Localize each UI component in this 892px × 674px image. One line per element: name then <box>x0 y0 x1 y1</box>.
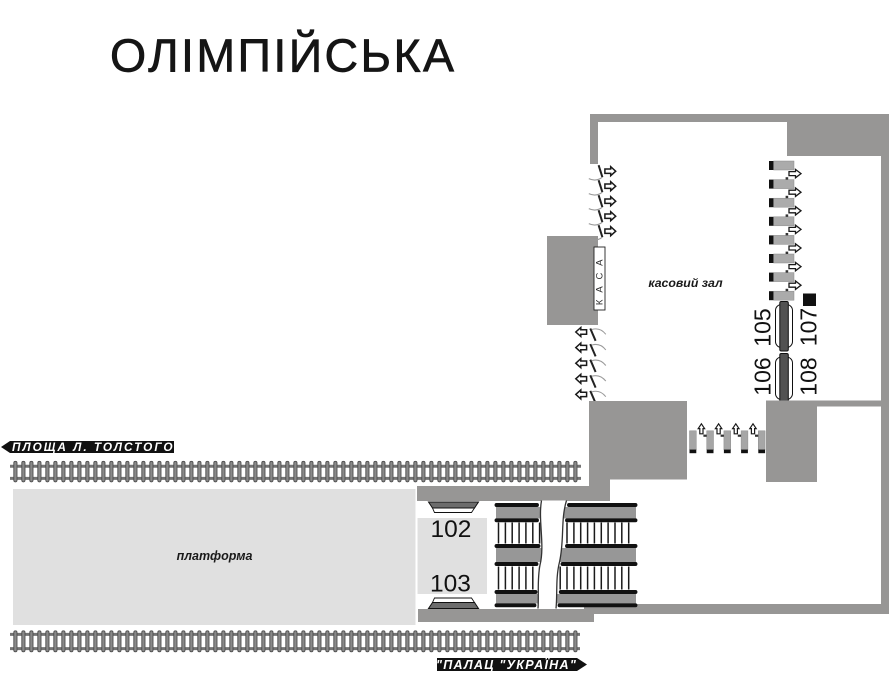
svg-text:107: 107 <box>796 308 822 346</box>
svg-text:платформа: платформа <box>177 549 253 563</box>
svg-text:102: 102 <box>431 516 472 543</box>
svg-text:КАСА: КАСА <box>594 252 605 305</box>
svg-text:касовий зал: касовий зал <box>648 276 723 290</box>
svg-text:"ПАЛАЦ "УКРАЇНА": "ПАЛАЦ "УКРАЇНА" <box>436 657 577 672</box>
svg-text:ОЛІМПІЙСЬКА: ОЛІМПІЙСЬКА <box>110 30 454 82</box>
svg-text:103: 103 <box>430 571 471 598</box>
svg-text:106: 106 <box>750 357 776 395</box>
svg-text:108: 108 <box>796 357 822 395</box>
svg-text:105: 105 <box>750 308 776 346</box>
